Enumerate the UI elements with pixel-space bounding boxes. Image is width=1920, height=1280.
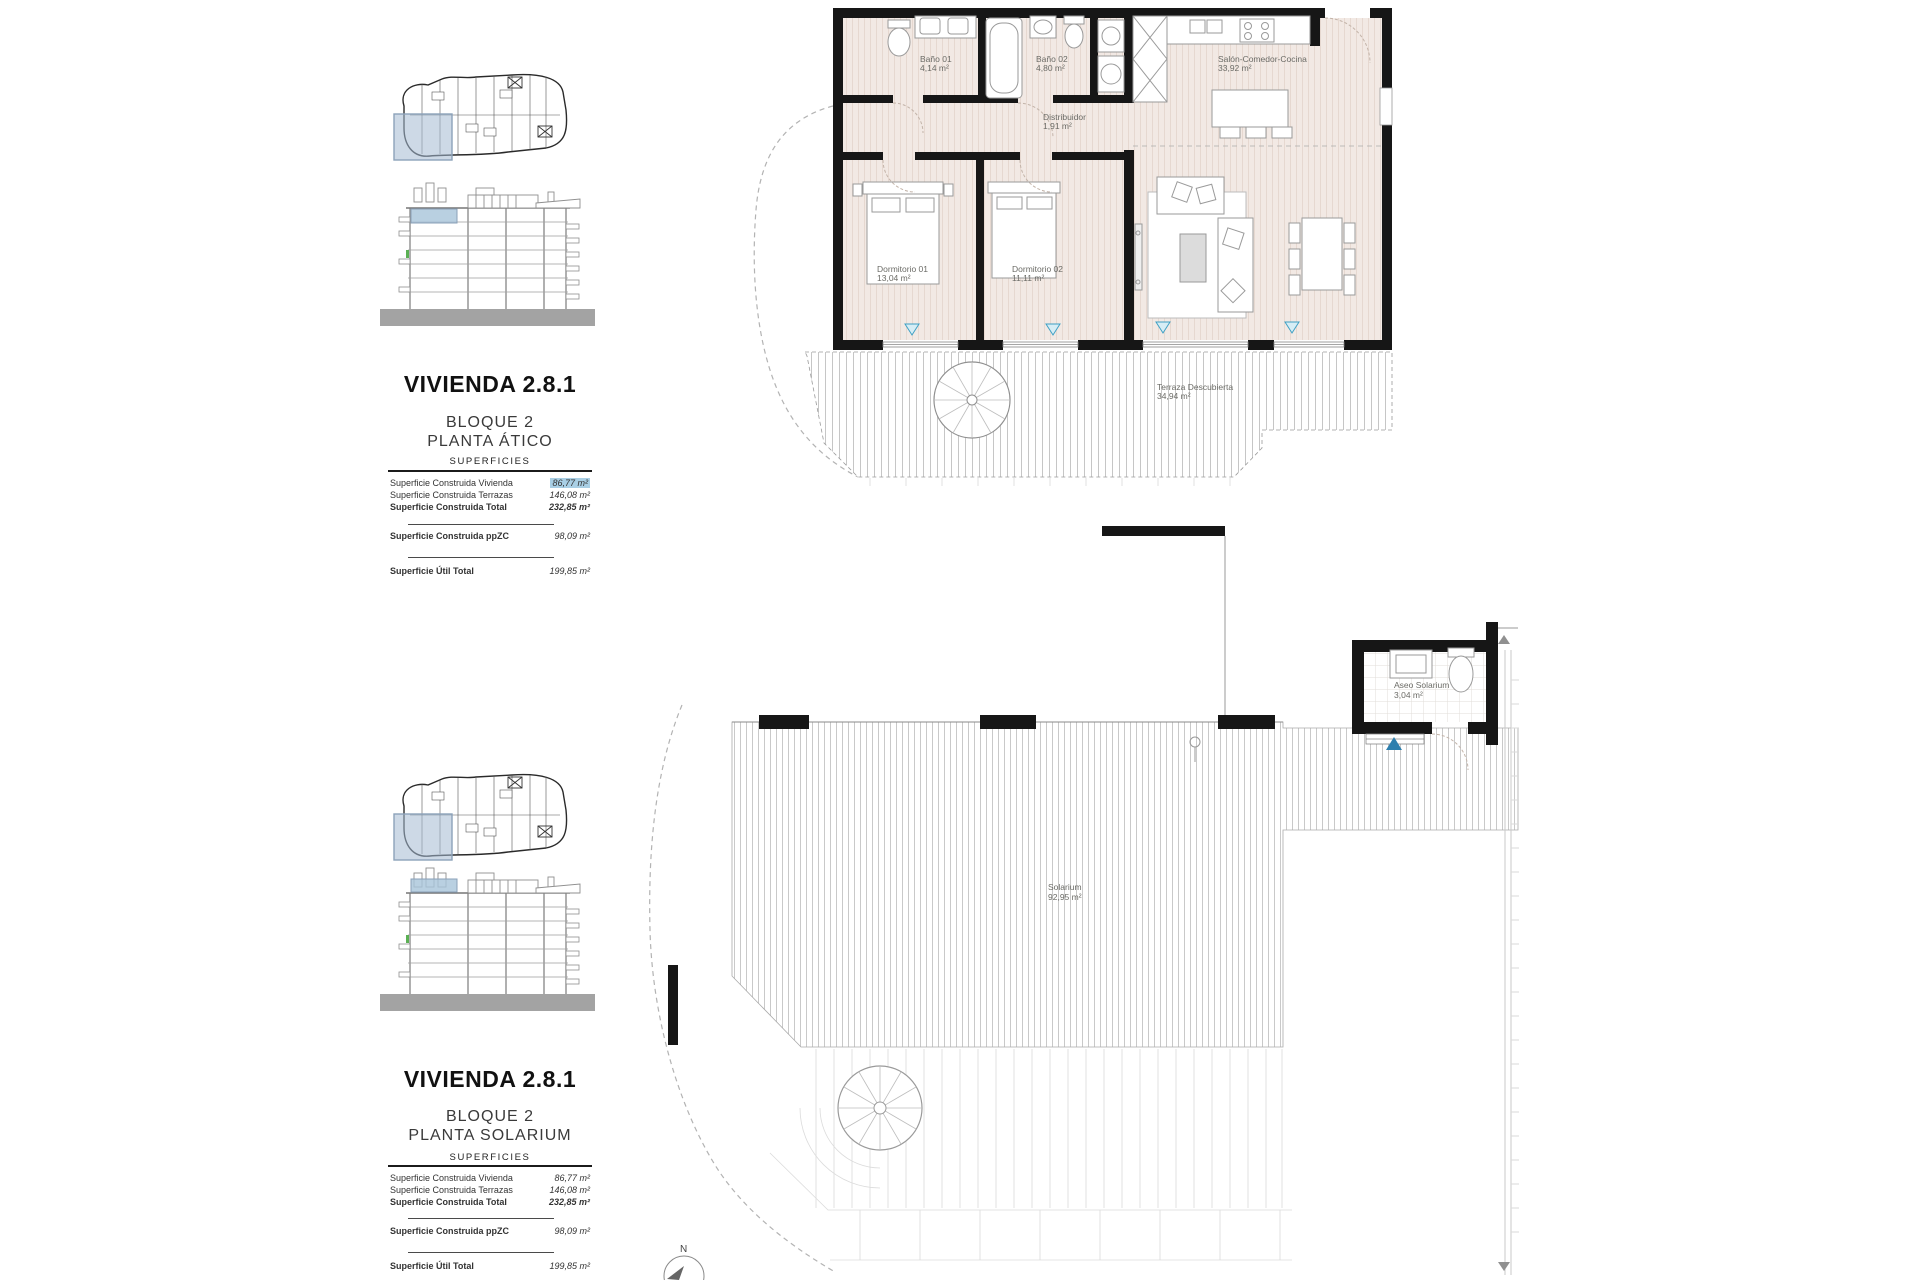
balconies: [399, 902, 579, 984]
block-line-solarium: BLOQUE 2: [388, 1108, 592, 1126]
room-label-solarium: Solarium: [1048, 882, 1082, 892]
surface-row-total: Superficie Construida Total 232,85 m²: [390, 502, 590, 512]
solarium-deck: [732, 722, 1518, 1047]
row-value: 146,08 m²: [549, 1185, 590, 1195]
surface-row-ppzc: Superficie Construida ppZC 98,09 m²: [390, 531, 590, 541]
surface-row-ppzc: Superficie Construida ppZC 98,09 m²: [390, 1226, 590, 1236]
room-area-aseo: 3,04 m²: [1394, 690, 1423, 700]
row-label: Superficie Construida Total: [390, 502, 507, 512]
surfaces-header-atico: SUPERFICIES: [388, 456, 592, 467]
row-value: 146,08 m²: [549, 490, 590, 500]
floor-line-atico: PLANTA ÁTICO: [388, 433, 592, 451]
row-value: 98,09 m²: [554, 1226, 590, 1236]
room-area-dorm02: 11,11 m²: [1012, 273, 1044, 283]
terrace-fence-ticks: [870, 478, 1230, 486]
level-marker-green: [406, 935, 409, 943]
room-area-dorm01: 13,04 m²: [877, 273, 911, 283]
room-area-distribuidor: 1,91 m²: [1043, 121, 1072, 131]
unit-title-text: VIVIENDA 2.8.1: [404, 371, 576, 397]
room-label-aseo: Aseo Solarium: [1394, 680, 1449, 690]
row-value: 199,85 m²: [549, 566, 590, 576]
key-plan-atico: [388, 70, 573, 162]
surface-row-terrazas: Superficie Construida Terrazas 146,08 m²: [390, 490, 590, 500]
row-label: Superficie Construida Vivienda: [390, 1173, 513, 1183]
level-marker-green: [406, 250, 409, 258]
roof-structures: [414, 183, 580, 208]
row-value: 199,85 m²: [549, 1261, 590, 1271]
floorplan-solarium: Solarium 92,95 m² Aseo Solarium 3,04 m² …: [620, 510, 1540, 1280]
block-line-atico: BLOQUE 2: [388, 414, 592, 432]
row-label: Superficie Útil Total: [390, 1261, 474, 1271]
surface-row-util: Superficie Útil Total 199,85 m²: [390, 566, 590, 576]
unit-location-highlight: [394, 814, 452, 860]
surface-row-vivienda: Superficie Construida Vivienda 86,77 m²: [390, 1173, 590, 1183]
floor-line-solarium: PLANTA SOLARIUM: [388, 1127, 592, 1145]
table-divider: [408, 1252, 554, 1253]
row-value-selected: 86,77 m²: [550, 478, 590, 488]
row-label: Superficie Construida Terrazas: [390, 490, 513, 500]
row-label: Superficie Construida Terrazas: [390, 1185, 513, 1195]
ground-bar: [380, 309, 595, 326]
room-area-terraza: 34,94 m²: [1157, 391, 1191, 401]
surface-row-terrazas: Superficie Construida Terrazas 146,08 m²: [390, 1185, 590, 1195]
structure-columns: [410, 893, 566, 994]
solarium-floor-highlight: [411, 879, 457, 892]
row-value: 232,85 m²: [549, 1197, 590, 1207]
kitchen-island: [1212, 90, 1292, 138]
room-area-solarium: 92,95 m²: [1048, 892, 1082, 902]
key-plan-solarium: [388, 768, 573, 864]
scroll-up-arrow[interactable]: [1498, 635, 1510, 644]
row-value: 86,77 m²: [554, 1173, 590, 1183]
scroll-down-arrow[interactable]: [1498, 1262, 1510, 1271]
row-label: Superficie Construida Vivienda: [390, 478, 513, 488]
compass-n-label: N: [680, 1244, 687, 1255]
laundry-stack: [1098, 20, 1124, 92]
surfaces-rule: [388, 470, 592, 472]
surface-row-total: Superficie Construida Total 232,85 m²: [390, 1197, 590, 1207]
elevation-atico: [380, 172, 595, 328]
surface-row-util: Superficie Útil Total 199,85 m²: [390, 1261, 590, 1271]
surface-row-vivienda: Superficie Construida Vivienda 86,77 m²: [390, 478, 590, 488]
ground-bar: [380, 994, 595, 1011]
floorplan-atico: Baño 01 4,14 m² Baño 02 4,80 m² Salón-Co…: [720, 0, 1420, 500]
spiral-stair: [934, 362, 1010, 438]
compass: N: [664, 1244, 704, 1280]
balconies: [399, 217, 579, 299]
table-divider: [408, 1218, 554, 1219]
table-divider: [408, 557, 554, 558]
room-area-salon: 33,92 m²: [1218, 63, 1252, 73]
atico-floor-highlight: [411, 209, 457, 223]
elevation-solarium: [380, 856, 595, 1014]
row-value: 98,09 m²: [554, 531, 590, 541]
unit-title-solarium: VIVIENDA 2.8.1: [388, 1066, 592, 1093]
dining-set: [1289, 218, 1355, 295]
row-value: 232,85 m²: [549, 502, 590, 512]
unit-title-atico: VIVIENDA 2.8.1: [388, 371, 592, 398]
room-area-bano01: 4,14 m²: [920, 63, 949, 73]
row-label: Superficie Construida Total: [390, 1197, 507, 1207]
living-room-furniture: [1135, 177, 1253, 318]
unit-location-highlight: [394, 114, 452, 160]
spiral-stair: [838, 1066, 922, 1150]
row-label: Superficie Construida ppZC: [390, 531, 509, 541]
row-label: Superficie Construida ppZC: [390, 1226, 509, 1236]
row-label: Superficie Útil Total: [390, 566, 474, 576]
surfaces-rule: [388, 1165, 592, 1167]
room-area-bano02: 4,80 m²: [1036, 63, 1065, 73]
surfaces-header-solarium: SUPERFICIES: [388, 1152, 592, 1163]
unit-title-text: VIVIENDA 2.8.1: [404, 1066, 576, 1092]
table-divider: [408, 524, 554, 525]
terrace-area: [805, 352, 1392, 477]
